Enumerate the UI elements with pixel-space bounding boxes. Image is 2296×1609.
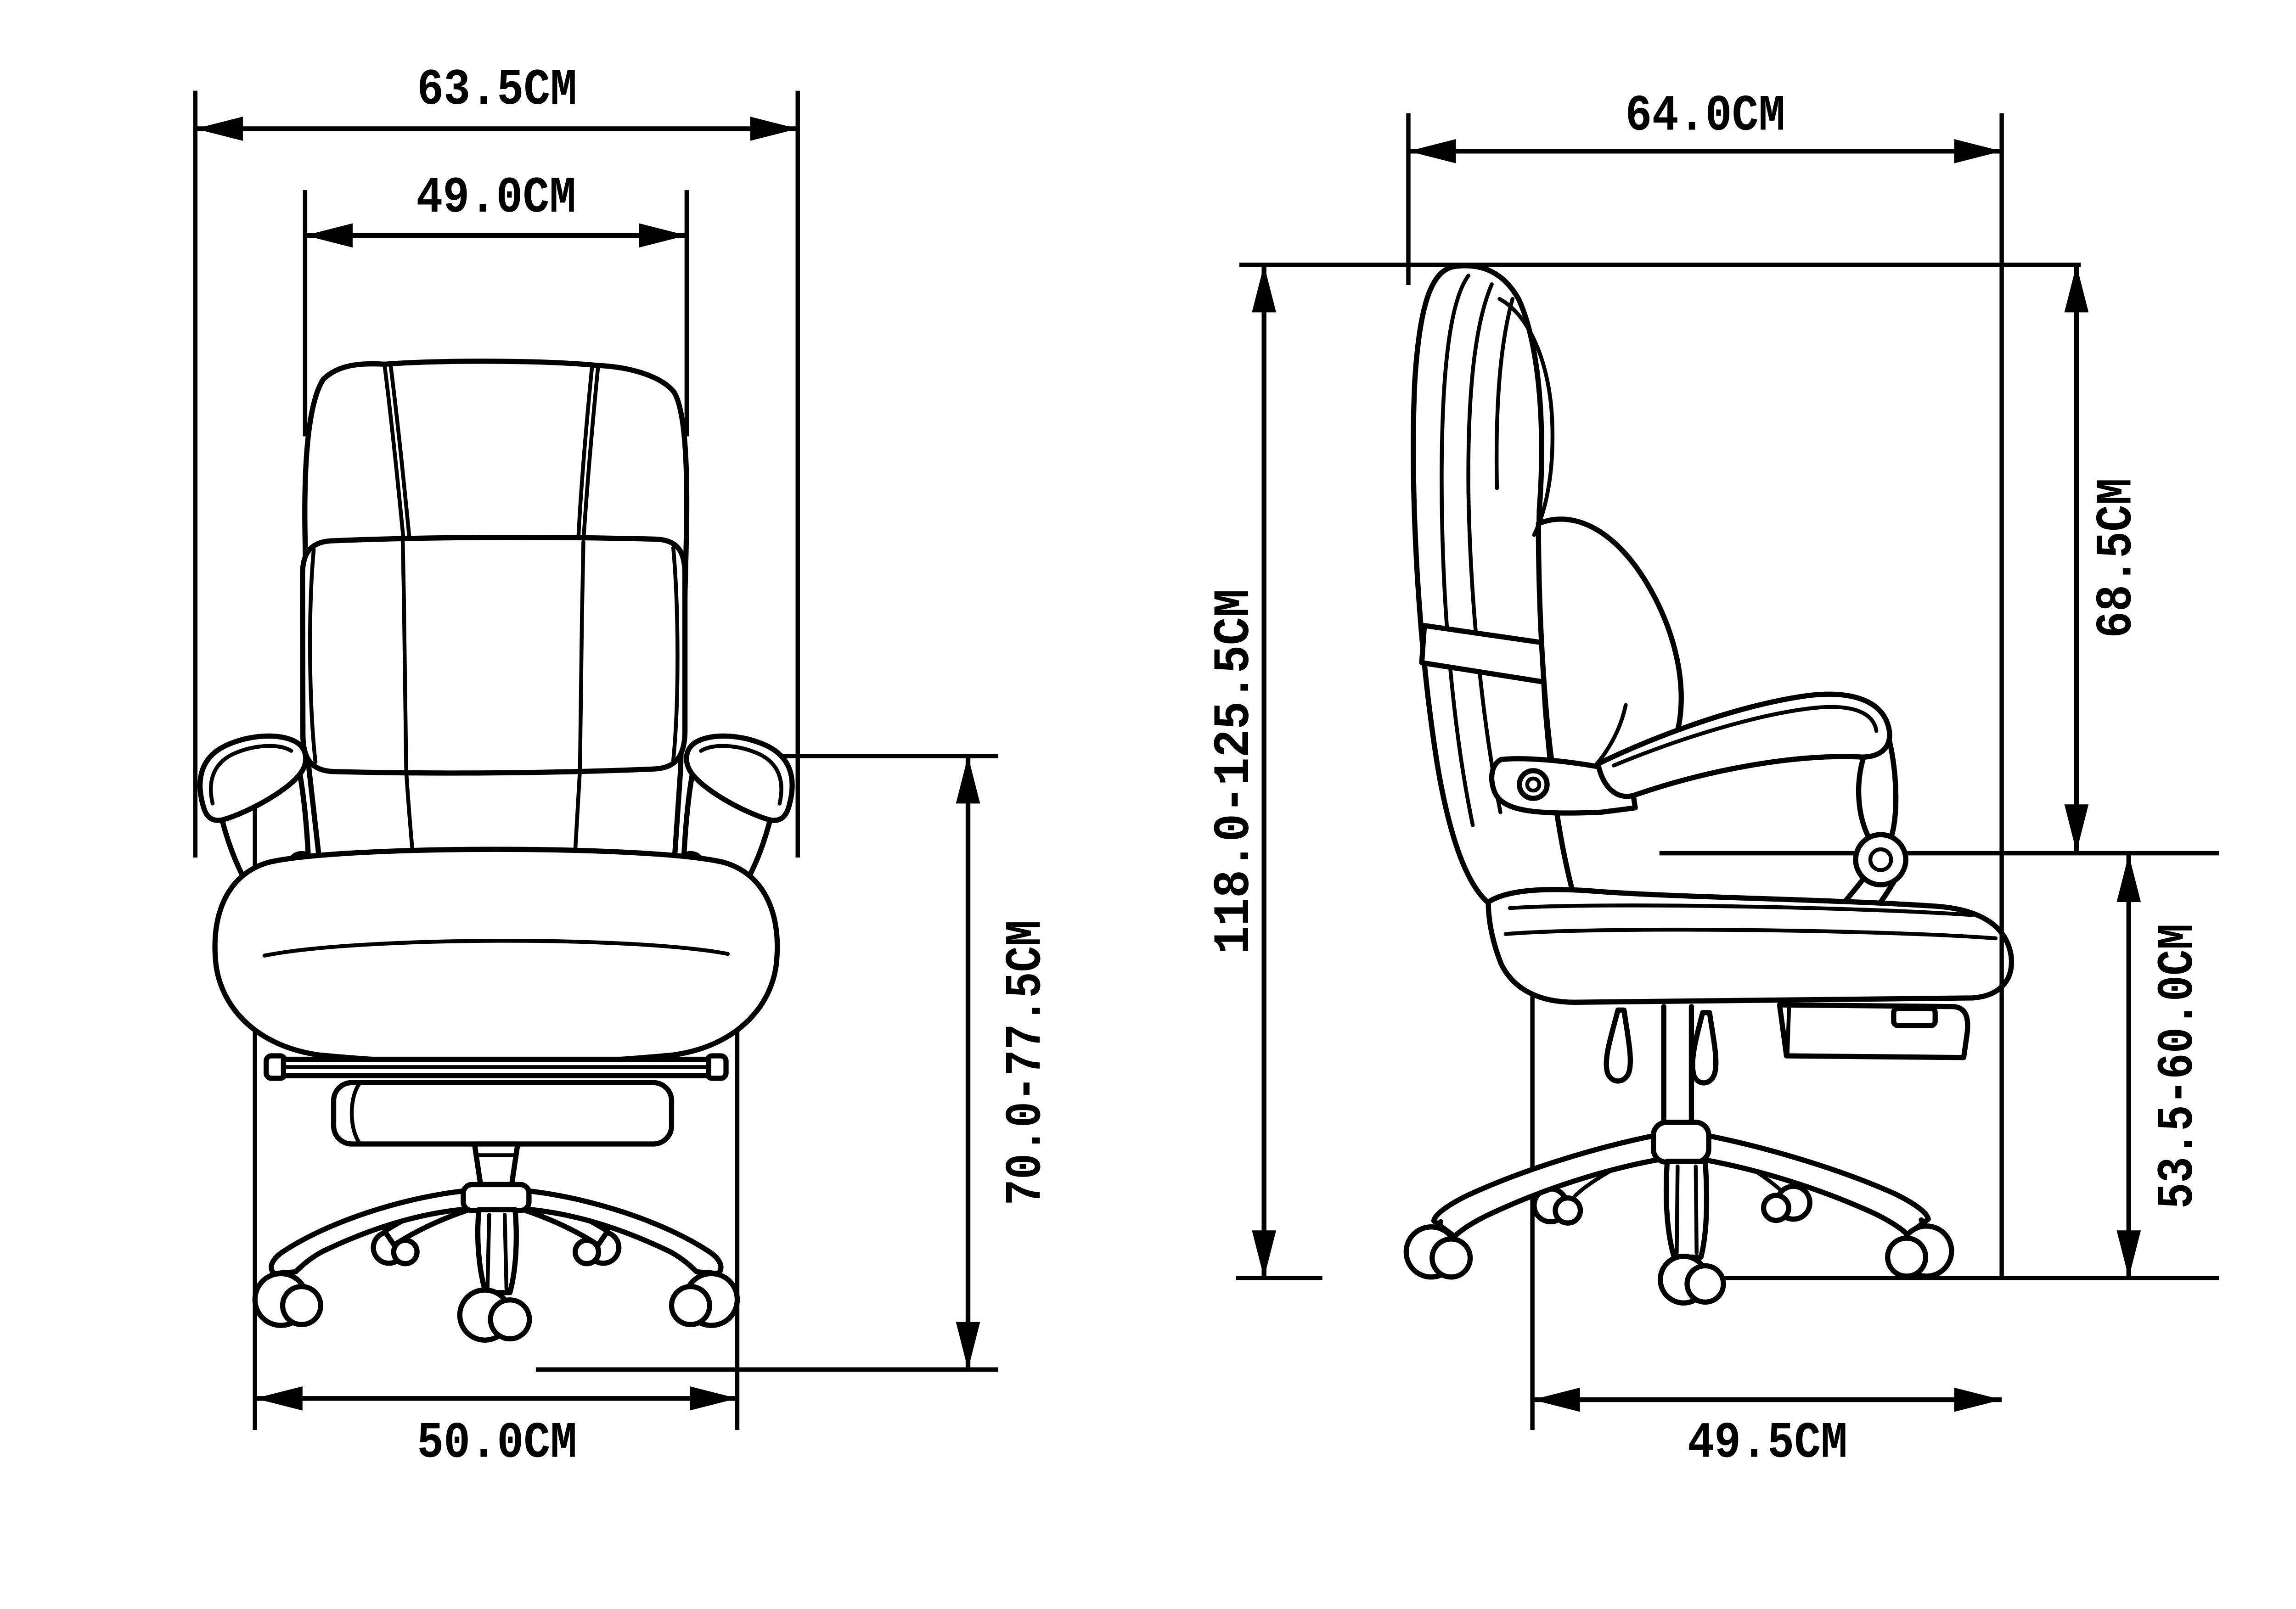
base-hub: [463, 1184, 529, 1210]
footrest-folded: [1779, 1005, 1967, 1058]
base-hub-side: [1654, 1122, 1709, 1162]
footrest-bar: [266, 1056, 726, 1078]
dim-label-front-overall-width: 63.5CM: [417, 62, 577, 119]
seat-cushion-front: [215, 849, 777, 1063]
dim-label-front-armrest-height: 70.0-77.5CM: [998, 920, 1055, 1205]
dim-label-side-backrest-height: 68.5CM: [2089, 478, 2146, 638]
armrest-pivot: [1856, 835, 1906, 885]
lumbar-pillow-front: [303, 538, 685, 773]
diagram-canvas: 63.5CM 49.0CM 70.0-77.5CM 50.0CM: [0, 0, 2296, 1514]
dim-label-side-overall-height: 118.0-125.5CM: [1206, 589, 1264, 954]
gas-lift: [474, 1144, 518, 1184]
dim-label-front-base-width: 50.0CM: [417, 1415, 577, 1472]
dim-label-front-backrest-width: 49.0CM: [416, 170, 576, 227]
dim-label-side-seat-depth: 49.5CM: [1688, 1415, 1847, 1472]
dim-label-side-overall-depth: 64.0CM: [1625, 88, 1785, 145]
dim-label-side-seat-height: 53.5-60.0CM: [2150, 924, 2207, 1209]
base-leg-center-side: [1666, 1161, 1707, 1257]
base-leg-center: [478, 1210, 517, 1293]
chair-dimension-diagram: 63.5CM 49.0CM 70.0-77.5CM 50.0CM: [0, 0, 2296, 1514]
seat-cushion-side: [1488, 890, 2011, 1003]
